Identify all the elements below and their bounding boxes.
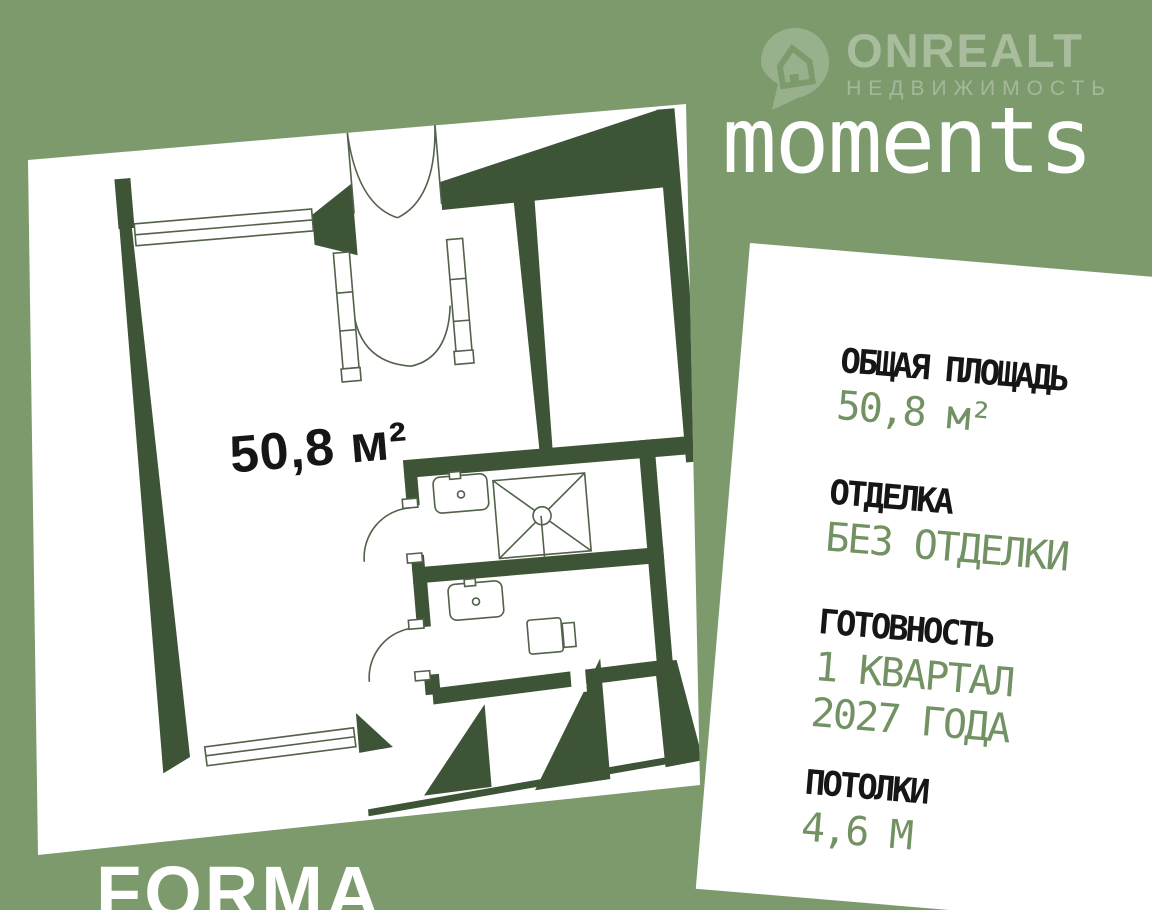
shower — [493, 473, 591, 560]
spec-finishing: ОТДЕЛКА БЕЗ ОТДЕЛКИ — [824, 473, 1073, 581]
spec-value: 1 КВАРТАЛ 2027 ГОДА — [809, 644, 1015, 752]
spec-ceilings: ПОТОЛКИ 4,6 М — [799, 763, 928, 861]
spec-value: 4,6 М — [799, 804, 925, 860]
spec-card: ОБЩАЯ ПЛОЩАДЬ 50,8 м² ОТДЕЛКА БЕЗ ОТДЕЛК… — [696, 243, 1152, 910]
developer-logo: FORMA — [96, 850, 382, 910]
spec-readiness: ГОТОВНОСТЬ 1 КВАРТАЛ 2027 ГОДА — [809, 602, 1018, 752]
spec-total-area: ОБЩАЯ ПЛОЩАДЬ 50,8 м² — [835, 341, 1069, 448]
opening-bottom-right — [570, 666, 587, 693]
brochure-page: ONREALT НЕДВИЖИМОСТЬ moments — [0, 0, 1152, 910]
